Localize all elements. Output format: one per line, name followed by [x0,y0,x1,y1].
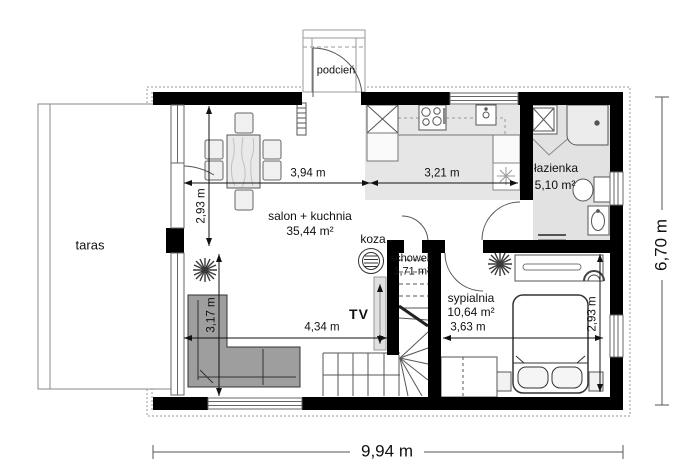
plant-icon [193,258,217,282]
dim-salon-depth-lower: 3,17 m [206,297,218,332]
shower-icon [567,105,608,145]
bedroom-window [610,315,623,357]
kitchen-cabinet [367,133,398,161]
dim-overall-width: 9,94 m [361,443,413,460]
stove-icon [359,249,384,274]
dim-bedroom-width: 3,63 m [450,322,485,334]
dim-salon-bottom-width: 4,34 m [304,322,339,334]
bathroom-window [610,172,623,205]
tv-unit [374,277,386,350]
dim-overall-depth: 6,70 m [653,219,670,271]
room-label-living: salon + kuchnia [268,210,352,222]
porch-label: podcień [317,66,356,77]
entry-radiator-icon [297,103,306,135]
floor-plan: podcień taras salon + kuchnia 35,44 m² ł… [0,0,693,474]
storage-door-arc [402,216,428,242]
tv-label: TV [349,307,369,321]
washbasin-icon [588,206,609,235]
dishwasher-icon [493,163,520,190]
terrace-door [171,163,184,228]
area-label-bathroom: 5,10 m² [535,179,576,191]
dim-kitchen-width: 3,21 m [424,168,459,180]
area-label-living: 35,44 m² [286,225,333,237]
wardrobe [515,255,604,281]
porch-outline [303,30,365,92]
bathroom-door-arc [482,202,520,240]
bed [513,295,588,393]
area-label-storage: 1,71 m² [393,267,430,278]
kitchen-sink-icon [476,105,496,125]
dining-table [227,135,260,188]
terrace-label: taras [76,239,105,252]
room-label-storage: schowek [390,254,433,265]
room-label-bathroom: łazienka [534,162,578,174]
dim-salon-width: 3,94 m [290,168,325,180]
plant-icon [488,252,512,276]
dim-bedroom-depth: 2,93 m [587,296,599,331]
bedroom-door-arc [445,253,483,291]
room-label-bedroom: sypialnia [448,292,495,304]
fridge-icon [367,105,398,133]
bedroom-dresser [441,357,497,397]
hob-icon [419,105,446,130]
stove-label: koza [360,233,385,245]
area-label-bedroom: 10,64 m² [447,306,494,318]
kitchen-window [450,93,518,104]
living-window [208,398,302,409]
terrace-outline [38,104,172,389]
dim-salon-depth-upper: 2,93 m [196,188,208,223]
